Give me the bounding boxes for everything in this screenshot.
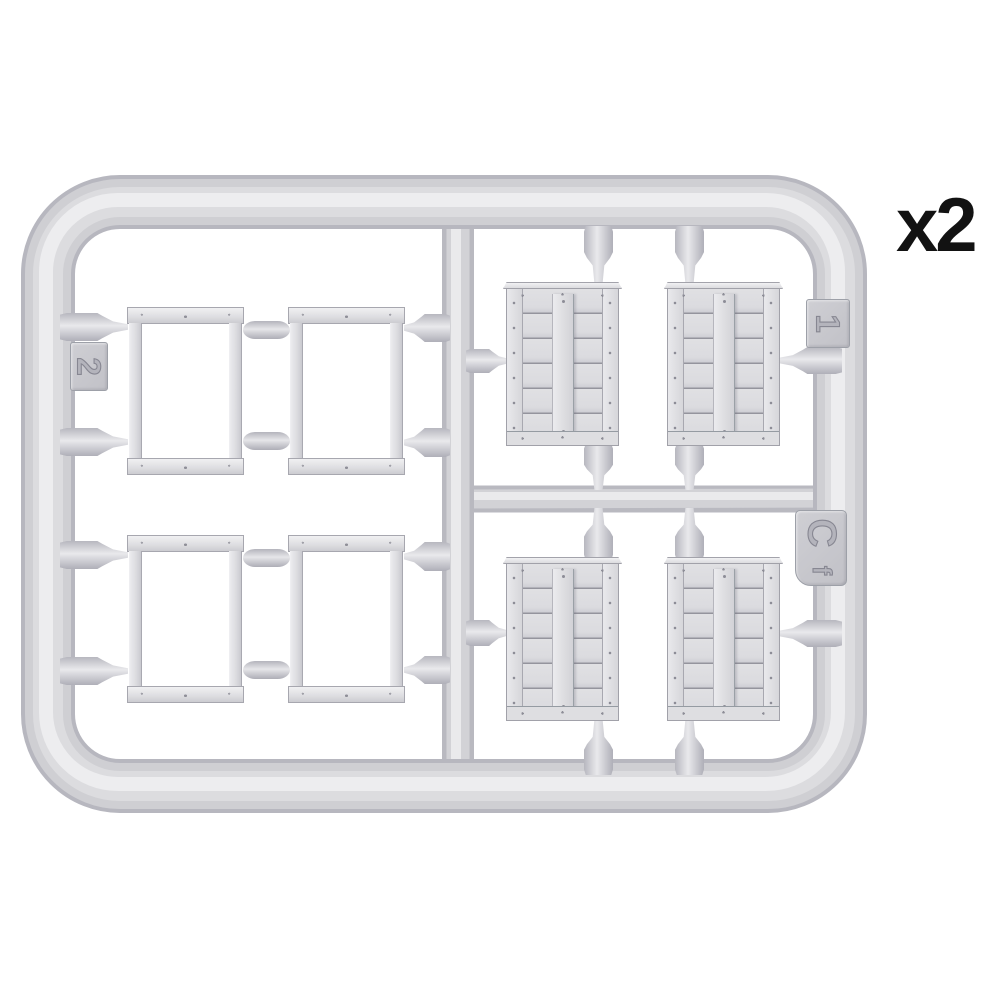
panel-right-stile — [602, 564, 618, 720]
panel-center-batten — [713, 569, 735, 714]
window-frame-part-2 — [288, 307, 405, 475]
panel-bottom-rail — [668, 706, 779, 720]
gate-number-text: 1 — [811, 314, 844, 332]
panel-left-stile — [668, 564, 684, 720]
panel-top-rivets — [668, 289, 779, 301]
sprue-code-tag: C f — [795, 510, 847, 586]
frame-top-rail — [127, 535, 244, 552]
panel-center-batten — [552, 294, 574, 439]
window-frame-part-4 — [288, 535, 405, 703]
panel-center-batten — [552, 569, 574, 714]
panel-top-rivets — [668, 564, 779, 576]
frame-top-rail — [127, 307, 244, 324]
panel-bottom-rail — [507, 431, 618, 445]
plank-panel-part-4 — [667, 557, 780, 721]
frame-left-stile — [129, 323, 142, 459]
panel-bottom-rail — [668, 431, 779, 445]
panel-bottom-rail — [507, 706, 618, 720]
frame-top-rail — [288, 307, 405, 324]
sprue-code-letter: C — [801, 518, 841, 547]
frame-left-stile — [129, 551, 142, 687]
frame-right-stile — [390, 551, 403, 687]
frame-right-stile — [229, 551, 242, 687]
panel-left-stile — [668, 289, 684, 445]
sprue-frame — [0, 0, 1000, 1000]
panel-right-stile — [763, 289, 779, 445]
window-frame-part-1 — [127, 307, 244, 475]
panel-left-stile — [507, 289, 523, 445]
panel-left-stile — [507, 564, 523, 720]
panel-center-batten — [713, 294, 735, 439]
frame-right-stile — [229, 323, 242, 459]
gate-number-text: 2 — [72, 357, 105, 375]
gate-number-tag-right: 1 — [806, 299, 850, 348]
frame-left-stile — [290, 323, 303, 459]
sprue-gate — [243, 661, 290, 679]
frame-left-stile — [290, 551, 303, 687]
frame-right-stile — [390, 323, 403, 459]
quantity-label: x2 — [896, 188, 975, 264]
sprue-gate — [243, 432, 290, 450]
frame-bottom-rail — [288, 686, 405, 703]
frame-top-rail — [288, 535, 405, 552]
panel-top-rivets — [507, 289, 618, 301]
window-frame-part-3 — [127, 535, 244, 703]
panel-body — [506, 288, 619, 446]
panel-right-stile — [763, 564, 779, 720]
gate-number-tag-left: 2 — [70, 342, 108, 391]
plank-panel-part-2 — [667, 282, 780, 446]
panel-body — [667, 288, 780, 446]
product-photo-model-sprue: 2 1 C f x2 — [0, 0, 1000, 1000]
panel-right-stile — [602, 289, 618, 445]
frame-bottom-rail — [288, 458, 405, 475]
plank-panel-part-3 — [506, 557, 619, 721]
panel-top-rivets — [507, 564, 618, 576]
sprue-gate — [243, 321, 290, 339]
sprue-code-suffix: f — [808, 566, 835, 575]
panel-body — [506, 563, 619, 721]
panel-body — [667, 563, 780, 721]
sprue-gate — [243, 549, 290, 567]
plank-panel-part-1 — [506, 282, 619, 446]
frame-bottom-rail — [127, 458, 244, 475]
frame-bottom-rail — [127, 686, 244, 703]
